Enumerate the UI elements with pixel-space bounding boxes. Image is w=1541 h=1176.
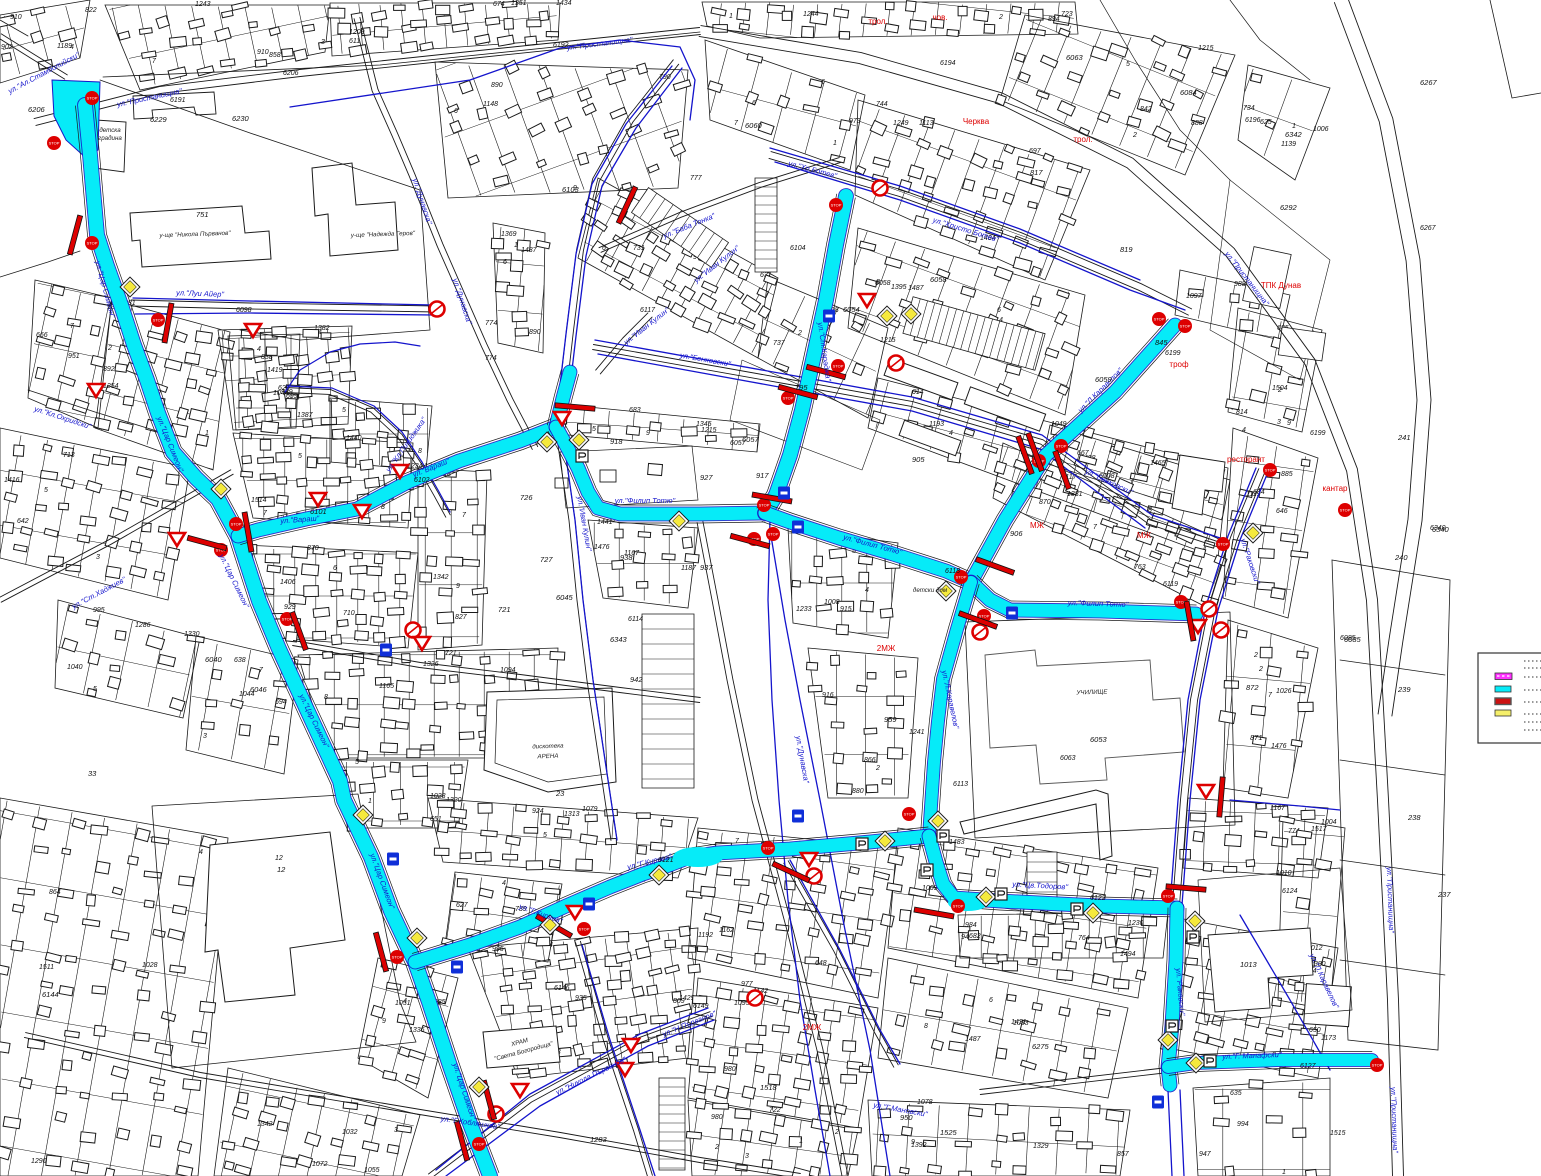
svg-text:1: 1 — [368, 798, 372, 805]
svg-text:1167: 1167 — [1270, 805, 1286, 812]
svg-text:240: 240 — [1394, 553, 1408, 562]
svg-text:9: 9 — [1287, 420, 1291, 427]
svg-text:6124: 6124 — [1282, 888, 1298, 895]
svg-text:817: 817 — [1030, 168, 1043, 177]
svg-text:910: 910 — [10, 14, 22, 21]
svg-text:2: 2 — [875, 765, 880, 772]
svg-text:5: 5 — [592, 426, 596, 433]
svg-text:6122: 6122 — [1090, 895, 1106, 902]
svg-text:951: 951 — [68, 353, 80, 360]
svg-text:6059: 6059 — [1095, 375, 1113, 384]
svg-text:1290: 1290 — [31, 1158, 47, 1165]
svg-text:827: 827 — [455, 614, 468, 621]
svg-text:6057: 6057 — [742, 435, 760, 444]
svg-text:935: 935 — [575, 995, 587, 1002]
svg-text:1241: 1241 — [909, 729, 925, 736]
svg-text:4: 4 — [502, 880, 506, 887]
svg-text:чов.: чов. — [932, 13, 947, 22]
svg-text:5: 5 — [44, 487, 48, 494]
svg-text:667: 667 — [1077, 450, 1090, 457]
svg-text:918: 918 — [610, 437, 623, 446]
svg-text:947: 947 — [1199, 1151, 1212, 1158]
svg-text:5: 5 — [355, 759, 359, 766]
svg-text:4: 4 — [865, 587, 869, 594]
svg-text:1215: 1215 — [880, 337, 896, 344]
svg-text:6267: 6267 — [1420, 225, 1437, 232]
svg-text:6063: 6063 — [1066, 53, 1084, 62]
svg-text:777: 777 — [690, 175, 703, 182]
svg-text:857: 857 — [1117, 1151, 1130, 1158]
svg-text:STOP: STOP — [1180, 324, 1191, 329]
svg-text:детска: детска — [99, 127, 121, 134]
svg-text:STOP: STOP — [474, 1142, 485, 1147]
svg-text:STOP: STOP — [833, 364, 844, 369]
svg-text:кантар: кантар — [1322, 484, 1348, 493]
svg-text:Черква: Черква — [963, 117, 990, 126]
svg-text:8: 8 — [324, 694, 328, 701]
svg-text:1072: 1072 — [312, 1161, 328, 1168]
svg-text:1189: 1189 — [57, 43, 72, 50]
svg-text:995: 995 — [93, 607, 105, 614]
svg-text:9: 9 — [382, 1018, 386, 1025]
svg-text:1494: 1494 — [1120, 951, 1136, 958]
svg-text:STOP: STOP — [87, 96, 98, 101]
svg-text:642: 642 — [17, 518, 29, 525]
svg-text:858: 858 — [269, 52, 281, 59]
svg-text:1395: 1395 — [891, 284, 907, 291]
svg-text:1381: 1381 — [1067, 491, 1083, 498]
svg-text:892: 892 — [103, 366, 115, 373]
svg-text:3: 3 — [203, 733, 207, 740]
svg-text:STOP: STOP — [153, 318, 164, 323]
svg-text:885: 885 — [1281, 471, 1293, 478]
svg-text:1233: 1233 — [796, 606, 812, 613]
svg-text:STOP: STOP — [768, 532, 779, 537]
svg-text:2: 2 — [797, 330, 802, 337]
svg-text:2: 2 — [107, 345, 112, 352]
svg-text:614: 614 — [912, 389, 924, 396]
svg-text:6058: 6058 — [930, 275, 948, 284]
svg-text:1342: 1342 — [257, 1121, 273, 1128]
svg-text:890: 890 — [529, 329, 541, 336]
svg-text:1: 1 — [205, 430, 209, 437]
svg-text:трол.: трол. — [868, 17, 887, 26]
svg-text:6192: 6192 — [553, 42, 569, 49]
svg-text:6121: 6121 — [658, 857, 674, 864]
svg-text:6119: 6119 — [1163, 581, 1178, 588]
svg-text:906: 906 — [1010, 529, 1023, 538]
svg-text:1165: 1165 — [379, 683, 394, 690]
svg-text:6: 6 — [997, 307, 1001, 314]
svg-text:4: 4 — [949, 430, 953, 437]
svg-text:6: 6 — [821, 79, 825, 86]
svg-text:1286: 1286 — [135, 622, 151, 629]
svg-text:2: 2 — [1132, 132, 1137, 139]
svg-text:1: 1 — [833, 140, 837, 147]
svg-text:12: 12 — [275, 855, 283, 862]
svg-text:890: 890 — [491, 82, 503, 89]
svg-text:6045: 6045 — [556, 593, 574, 602]
svg-text:915: 915 — [840, 606, 852, 613]
svg-text:6230: 6230 — [232, 114, 250, 123]
svg-text:929: 929 — [284, 604, 296, 611]
svg-text:6: 6 — [752, 100, 756, 107]
svg-text:1: 1 — [799, 1138, 803, 1145]
svg-text:ресторант: ресторант — [1227, 455, 1265, 464]
svg-text:994: 994 — [1237, 1121, 1249, 1128]
svg-text:STOP: STOP — [783, 396, 794, 401]
svg-text:1162: 1162 — [719, 927, 734, 934]
svg-text:троф: троф — [1169, 360, 1189, 369]
svg-text:1097: 1097 — [1186, 293, 1203, 300]
svg-text:8: 8 — [924, 1023, 928, 1030]
svg-text:1329: 1329 — [1033, 1143, 1049, 1150]
svg-text:STOP: STOP — [1372, 1063, 1383, 1068]
svg-text:237: 237 — [1437, 890, 1451, 899]
svg-text:682: 682 — [969, 933, 981, 940]
svg-text:731: 731 — [633, 245, 645, 252]
svg-text:6108: 6108 — [1099, 473, 1115, 480]
svg-text:763: 763 — [1134, 564, 1146, 571]
svg-text:959: 959 — [884, 715, 897, 724]
svg-text:6063: 6063 — [1060, 755, 1076, 762]
svg-text:984: 984 — [965, 922, 977, 929]
svg-text:2: 2 — [714, 1144, 719, 1151]
svg-text:1487: 1487 — [908, 285, 925, 292]
svg-text:1243: 1243 — [195, 1, 211, 8]
svg-text:973: 973 — [849, 118, 861, 125]
svg-text:674: 674 — [493, 1, 505, 8]
svg-text:646: 646 — [1276, 508, 1288, 515]
svg-text:ТПК Дунав: ТПК Дунав — [1261, 281, 1301, 290]
svg-text:1139: 1139 — [1281, 141, 1296, 148]
svg-text:1514: 1514 — [251, 497, 267, 504]
svg-text:1476: 1476 — [1271, 743, 1287, 750]
svg-text:1: 1 — [1282, 1169, 1286, 1176]
svg-text:937: 937 — [700, 563, 713, 572]
svg-text:1049: 1049 — [1051, 421, 1067, 428]
svg-text:648: 648 — [815, 960, 827, 967]
svg-text:611: 611 — [349, 38, 360, 45]
svg-text:МЖ: МЖ — [1030, 521, 1045, 530]
svg-text:1006: 1006 — [1313, 126, 1329, 133]
svg-text:627: 627 — [456, 902, 469, 909]
svg-text:1: 1 — [729, 13, 733, 20]
svg-text:6084: 6084 — [1180, 88, 1197, 97]
svg-text:864: 864 — [49, 889, 61, 896]
svg-text:9: 9 — [646, 430, 650, 437]
svg-text:STOP: STOP — [1154, 317, 1165, 322]
svg-text:4: 4 — [1242, 427, 1246, 434]
svg-text:6343: 6343 — [610, 635, 628, 644]
svg-text:1487: 1487 — [965, 1036, 982, 1043]
svg-text:1215: 1215 — [1198, 45, 1214, 52]
svg-text:2МЖ: 2МЖ — [803, 1023, 822, 1032]
svg-text:774: 774 — [485, 318, 498, 327]
svg-text:33: 33 — [88, 769, 97, 778]
svg-text:819: 819 — [1120, 245, 1133, 254]
svg-text:6046: 6046 — [250, 685, 268, 694]
svg-text:2: 2 — [1277, 387, 1282, 394]
svg-text:6053: 6053 — [1090, 735, 1108, 744]
svg-text:910: 910 — [257, 49, 269, 56]
svg-text:6194: 6194 — [940, 60, 956, 67]
svg-text:6098: 6098 — [236, 307, 252, 314]
svg-text:1483: 1483 — [949, 839, 965, 846]
svg-text:6206: 6206 — [28, 105, 46, 114]
svg-text:АРЕНА: АРЕНА — [536, 753, 558, 761]
svg-text:905: 905 — [912, 455, 925, 464]
svg-text:1079: 1079 — [582, 806, 598, 813]
svg-text:STOP: STOP — [763, 846, 774, 851]
svg-text:1330: 1330 — [184, 631, 200, 638]
svg-text:1032: 1032 — [342, 1129, 358, 1136]
svg-text:6117: 6117 — [640, 307, 656, 314]
svg-text:1192: 1192 — [698, 932, 713, 939]
svg-text:2: 2 — [834, 1129, 839, 1136]
svg-text:6144: 6144 — [42, 990, 59, 999]
svg-text:710: 710 — [343, 610, 355, 617]
svg-text:1004: 1004 — [1321, 819, 1337, 826]
svg-text:1028: 1028 — [142, 962, 158, 969]
svg-text:МЖ: МЖ — [1137, 531, 1152, 540]
svg-text:2: 2 — [1258, 666, 1263, 673]
svg-text:3: 3 — [394, 1127, 398, 1134]
svg-text:6113: 6113 — [953, 781, 968, 788]
svg-text:977: 977 — [741, 981, 754, 988]
svg-text:6146: 6146 — [554, 985, 570, 992]
svg-text:1525: 1525 — [940, 1128, 958, 1137]
svg-text:1040: 1040 — [67, 664, 83, 671]
svg-text:STOP: STOP — [49, 141, 60, 146]
svg-text:12: 12 — [277, 865, 286, 874]
svg-text:694: 694 — [275, 699, 287, 706]
svg-text:дискотека: дискотека — [532, 742, 564, 750]
svg-text:938: 938 — [620, 553, 633, 562]
svg-text:4: 4 — [199, 849, 203, 856]
svg-text:1342: 1342 — [433, 574, 449, 581]
svg-text:1518: 1518 — [760, 1083, 778, 1092]
svg-text:STOP: STOP — [231, 522, 242, 527]
svg-text:3: 3 — [96, 554, 100, 561]
svg-text:980: 980 — [711, 1114, 723, 1121]
svg-text:4: 4 — [403, 998, 407, 1005]
svg-text:795: 795 — [795, 383, 808, 392]
svg-text:1406: 1406 — [280, 579, 296, 586]
svg-text:888: 888 — [1191, 120, 1203, 127]
svg-text:STOP: STOP — [759, 503, 770, 508]
svg-text:727: 727 — [540, 555, 553, 564]
svg-text:6101: 6101 — [310, 507, 327, 516]
svg-text:870: 870 — [307, 545, 319, 552]
svg-text:детски дом: детски дом — [913, 587, 948, 594]
svg-text:STOP: STOP — [831, 203, 842, 208]
svg-text:6118: 6118 — [945, 568, 960, 575]
svg-text:650: 650 — [1309, 1027, 1321, 1034]
svg-text:1215: 1215 — [701, 427, 717, 434]
svg-text:STOP: STOP — [956, 575, 967, 580]
svg-text:STOP: STOP — [1218, 542, 1229, 547]
svg-text:764: 764 — [1078, 935, 1090, 942]
svg-text:1113: 1113 — [919, 120, 934, 127]
svg-text:STOP: STOP — [392, 955, 403, 960]
svg-text:6292: 6292 — [1280, 203, 1298, 212]
svg-text:1230: 1230 — [1128, 920, 1144, 927]
svg-text:239: 239 — [1397, 685, 1411, 694]
svg-text:814: 814 — [1236, 409, 1248, 416]
svg-text:988: 988 — [1234, 281, 1246, 288]
svg-text:722: 722 — [769, 1107, 781, 1114]
svg-text:942: 942 — [630, 675, 643, 684]
svg-text:6058: 6058 — [875, 280, 891, 287]
svg-text:5: 5 — [342, 407, 346, 414]
svg-text:666: 666 — [36, 332, 48, 339]
svg-text:6: 6 — [503, 259, 507, 266]
svg-text:ул."Филип Тотю": ул."Филип Тотю" — [614, 496, 676, 505]
svg-text:5: 5 — [93, 686, 97, 693]
svg-text:STOP: STOP — [579, 927, 590, 932]
svg-text:927: 927 — [700, 473, 713, 482]
svg-text:6102: 6102 — [414, 477, 430, 484]
svg-text:6040: 6040 — [205, 655, 223, 664]
svg-text:1416: 1416 — [4, 477, 20, 484]
svg-text:8: 8 — [418, 448, 422, 455]
svg-text:градина: градина — [98, 135, 122, 142]
svg-text:3: 3 — [321, 39, 325, 46]
svg-text:1351: 1351 — [511, 0, 527, 7]
svg-text:1148: 1148 — [483, 101, 498, 108]
svg-text:1419: 1419 — [267, 367, 283, 374]
svg-text:1013: 1013 — [1240, 960, 1258, 969]
svg-text:845: 845 — [1155, 338, 1168, 347]
svg-text:9: 9 — [911, 1139, 915, 1146]
svg-text:734: 734 — [1243, 105, 1255, 112]
svg-text:6275: 6275 — [1032, 1042, 1050, 1051]
svg-text:1511: 1511 — [39, 964, 54, 971]
svg-text:744: 744 — [876, 101, 888, 108]
svg-text:3: 3 — [745, 1153, 749, 1160]
svg-text:774: 774 — [485, 355, 497, 362]
svg-text:6060: 6060 — [745, 121, 763, 130]
svg-text:723: 723 — [1061, 11, 1073, 18]
svg-text:4: 4 — [257, 346, 261, 353]
svg-text:6103: 6103 — [562, 185, 580, 194]
svg-text:6149: 6149 — [693, 1003, 709, 1010]
svg-text:683: 683 — [629, 407, 641, 414]
svg-text:6342: 6342 — [1285, 130, 1303, 139]
svg-text:STOP: STOP — [87, 241, 98, 246]
svg-text:1431: 1431 — [1011, 1019, 1027, 1026]
svg-text:737: 737 — [773, 340, 786, 347]
svg-text:238: 238 — [1407, 813, 1421, 822]
svg-text:ул."Луи Айер": ул."Луи Айер" — [175, 288, 225, 299]
svg-text:1387: 1387 — [297, 412, 314, 419]
svg-text:697: 697 — [1029, 148, 1042, 155]
svg-text:917: 917 — [756, 471, 769, 480]
svg-text:2МЖ: 2МЖ — [877, 644, 896, 653]
svg-text:6267: 6267 — [1420, 78, 1438, 87]
svg-text:1: 1 — [514, 242, 518, 249]
svg-text:4: 4 — [549, 942, 553, 949]
svg-text:842: 842 — [1140, 106, 1152, 113]
svg-text:6: 6 — [989, 997, 993, 1004]
svg-text:726: 726 — [520, 493, 533, 502]
svg-text:1: 1 — [1292, 123, 1296, 130]
svg-text:721: 721 — [445, 650, 457, 657]
svg-text:1382: 1382 — [314, 325, 330, 332]
svg-text:1244: 1244 — [803, 11, 819, 18]
svg-text:635: 635 — [1230, 1090, 1242, 1097]
svg-text:6: 6 — [333, 565, 337, 572]
svg-text:1487: 1487 — [521, 247, 538, 254]
svg-text:1476: 1476 — [594, 544, 610, 551]
svg-text:1187: 1187 — [681, 565, 697, 572]
svg-text:950: 950 — [900, 1113, 913, 1122]
svg-text:980: 980 — [724, 1066, 736, 1073]
svg-text:STOP: STOP — [904, 812, 915, 817]
svg-text:1026: 1026 — [1276, 688, 1292, 695]
svg-text:1249: 1249 — [893, 120, 909, 127]
svg-text:625: 625 — [1260, 119, 1272, 126]
svg-text:822: 822 — [85, 7, 97, 14]
svg-text:1313: 1313 — [564, 811, 580, 818]
svg-text:6085: 6085 — [1344, 635, 1362, 644]
svg-text:6: 6 — [454, 108, 458, 115]
svg-text:880: 880 — [852, 788, 864, 795]
svg-text:809: 809 — [673, 998, 685, 1005]
svg-text:5: 5 — [298, 453, 302, 460]
svg-text:866: 866 — [864, 757, 876, 764]
svg-text:638: 638 — [234, 657, 246, 664]
svg-text:6229: 6229 — [150, 115, 168, 124]
svg-text:1465: 1465 — [1150, 460, 1166, 467]
svg-text:1517: 1517 — [1311, 826, 1328, 833]
svg-text:6199: 6199 — [1165, 350, 1181, 357]
svg-text:6340: 6340 — [1432, 525, 1450, 534]
svg-text:1283: 1283 — [590, 1135, 608, 1144]
svg-text:870: 870 — [1039, 499, 1051, 506]
svg-text:STOP: STOP — [1163, 894, 1174, 899]
svg-text:6127: 6127 — [1300, 1063, 1317, 1070]
svg-text:1193: 1193 — [929, 421, 944, 428]
svg-text:1369: 1369 — [501, 231, 517, 238]
svg-text:872: 872 — [1246, 683, 1259, 692]
svg-text:STOP: STOP — [1056, 444, 1067, 449]
svg-text:STOP: STOP — [1340, 508, 1351, 513]
svg-text:6104: 6104 — [790, 245, 806, 252]
svg-text:5: 5 — [543, 832, 547, 839]
svg-text:1515: 1515 — [1330, 1130, 1346, 1137]
svg-text:1345: 1345 — [696, 421, 712, 428]
svg-text:6054: 6054 — [843, 305, 860, 314]
svg-text:751: 751 — [196, 210, 209, 219]
svg-text:6199: 6199 — [1310, 430, 1326, 437]
svg-text:721: 721 — [498, 605, 511, 614]
svg-text:1008: 1008 — [824, 599, 840, 606]
svg-text:6191: 6191 — [170, 97, 186, 104]
svg-text:трол.: трол. — [1073, 135, 1092, 144]
svg-text:6196: 6196 — [1245, 117, 1261, 124]
svg-text:1173: 1173 — [1321, 1035, 1336, 1042]
svg-text:713: 713 — [63, 452, 75, 459]
svg-text:23: 23 — [555, 789, 565, 798]
svg-text:2: 2 — [998, 14, 1003, 21]
svg-text:1055: 1055 — [364, 1167, 380, 1174]
svg-text:STOP: STOP — [953, 904, 964, 909]
svg-text:3: 3 — [1277, 419, 1281, 426]
svg-text:916: 916 — [822, 692, 834, 699]
svg-text:1078: 1078 — [917, 1099, 933, 1106]
